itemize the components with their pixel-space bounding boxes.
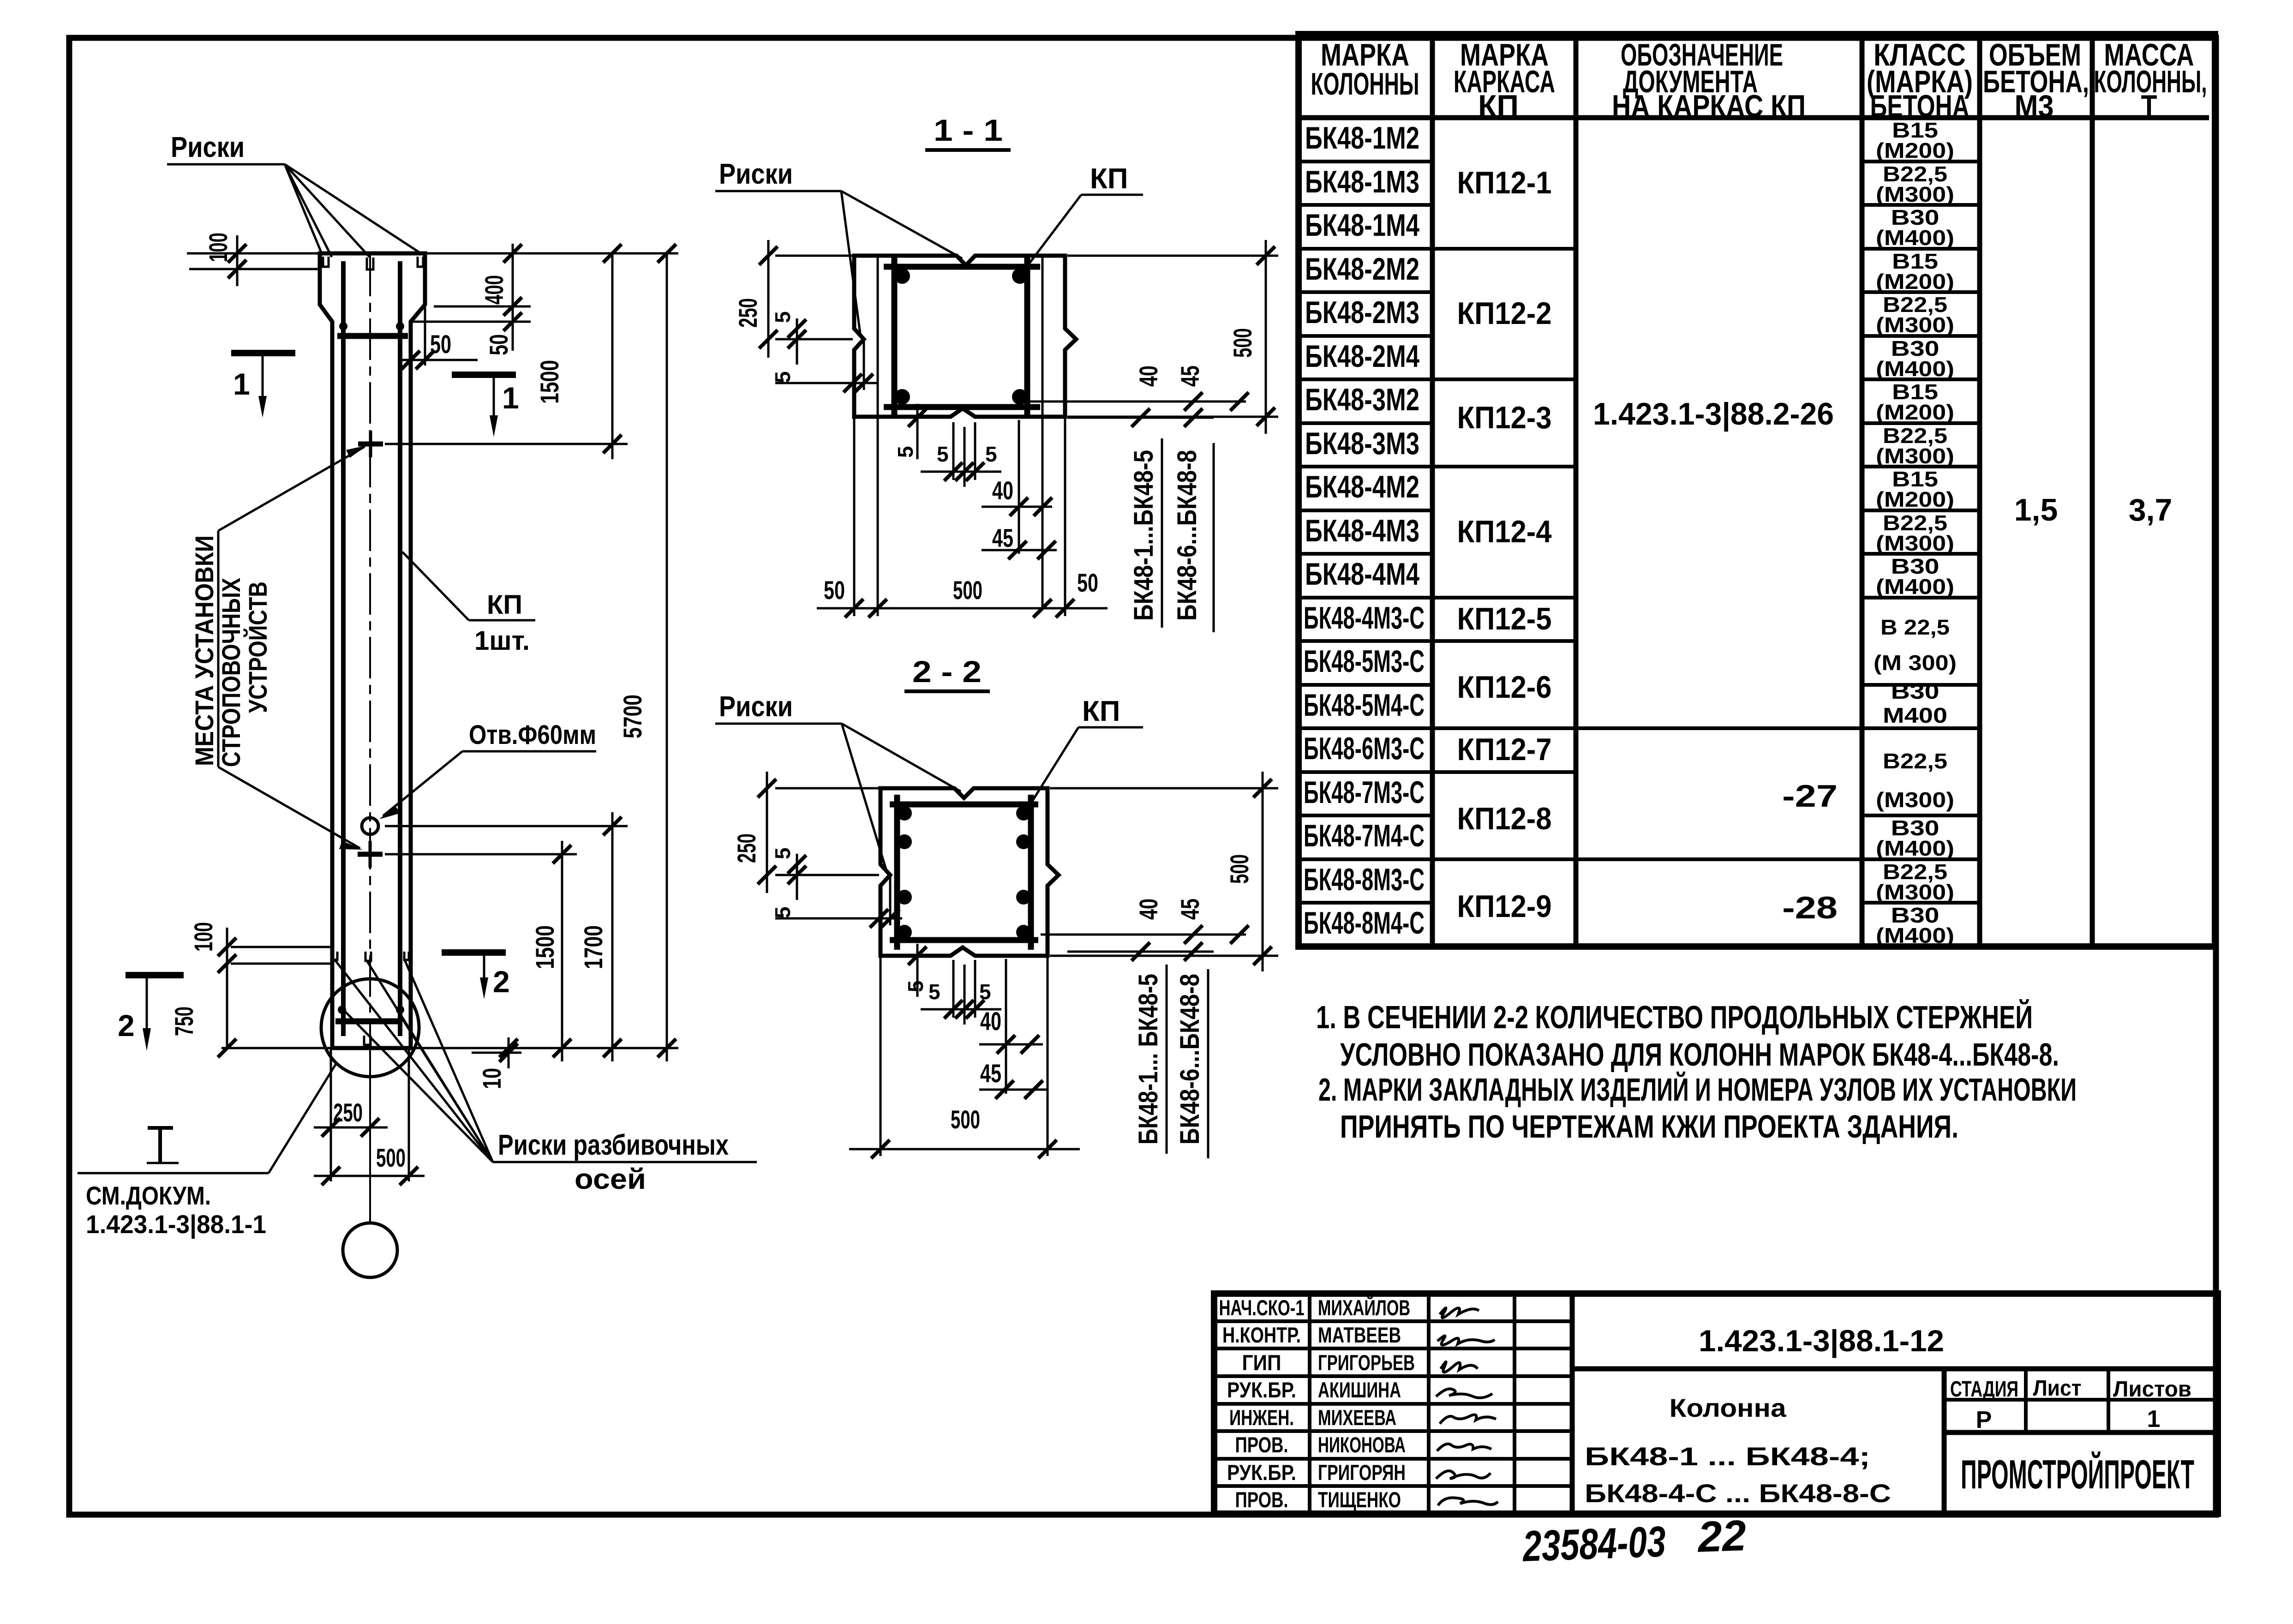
svg-text:5: 5 [771, 847, 795, 859]
svg-text:50: 50 [484, 334, 513, 355]
svg-text:(М400): (М400) [1876, 357, 1954, 381]
svg-text:БК48-6...БК48-8: БК48-6...БК48-8 [1175, 974, 1205, 1145]
svg-text:40: 40 [980, 1007, 1001, 1036]
svg-text:250: 250 [333, 1098, 363, 1127]
svg-text:НИКОНОВА: НИКОНОВА [1318, 1432, 1406, 1457]
svg-text:(М200): (М200) [1876, 487, 1954, 511]
svg-text:-28: -28 [1782, 890, 1838, 925]
svg-text:1 - 1: 1 - 1 [934, 113, 1003, 147]
svg-text:БК48-5М3-С: БК48-5М3-С [1304, 644, 1425, 679]
svg-text:5: 5 [937, 442, 949, 466]
svg-text:1500: 1500 [535, 360, 564, 404]
svg-text:КП12-3: КП12-3 [1457, 400, 1552, 435]
svg-text:БК48-8М3-С: БК48-8М3-С [1304, 862, 1425, 897]
svg-text:БК48-6М3-С: БК48-6М3-С [1304, 731, 1425, 766]
svg-text:1700: 1700 [579, 925, 608, 969]
svg-text:КП12-1: КП12-1 [1457, 165, 1552, 200]
svg-text:БК48-4М2: БК48-4М2 [1305, 469, 1419, 504]
svg-text:МИХЕЕВА: МИХЕЕВА [1318, 1405, 1396, 1430]
svg-text:РУК.БР.: РУК.БР. [1227, 1460, 1296, 1485]
svg-text:БК48-1М3: БК48-1М3 [1305, 164, 1419, 199]
svg-text:ИНЖЕН.: ИНЖЕН. [1229, 1405, 1294, 1430]
svg-text:Лист: Лист [2033, 1376, 2082, 1401]
svg-text:УСТРОЙСТВ: УСТРОЙСТВ [243, 581, 272, 713]
svg-text:В 22,5: В 22,5 [1880, 615, 1950, 639]
svg-text:АКИШИНА: АКИШИНА [1318, 1378, 1401, 1402]
svg-text:В30: В30 [1891, 679, 1940, 703]
svg-text:1.423.1-3|88.1-12: 1.423.1-3|88.1-12 [1699, 1324, 1944, 1359]
svg-text:40: 40 [992, 476, 1013, 505]
svg-text:ТИЩЕНКО: ТИЩЕНКО [1318, 1487, 1401, 1512]
svg-text:БК48-7М3-С: БК48-7М3-С [1304, 775, 1425, 810]
svg-text:500: 500 [951, 1105, 980, 1134]
svg-text:(М300): (М300) [1876, 444, 1954, 468]
svg-text:Риски: Риски [171, 132, 245, 163]
svg-text:ПРИНЯТЬ ПО ЧЕРТЕЖАМ КЖИ ПРОЕКТ: ПРИНЯТЬ ПО ЧЕРТЕЖАМ КЖИ ПРОЕКТА ЗДАНИЯ. [1340, 1109, 1958, 1145]
svg-text:(М300): (М300) [1876, 880, 1954, 904]
svg-text:КП12-7: КП12-7 [1457, 732, 1552, 767]
svg-text:400: 400 [479, 275, 509, 305]
svg-text:СМ.ДОКУМ.: СМ.ДОКУМ. [86, 1181, 211, 1210]
svg-text:1.423.1-3|88.2-26: 1.423.1-3|88.2-26 [1593, 396, 1834, 432]
svg-text:5: 5 [979, 980, 991, 1004]
svg-text:БК48-1М2: БК48-1М2 [1305, 120, 1419, 156]
svg-text:(М400): (М400) [1876, 226, 1954, 250]
svg-text:(М 300): (М 300) [1874, 651, 1957, 675]
svg-text:КП12-8: КП12-8 [1457, 801, 1552, 836]
svg-text:5: 5 [771, 311, 795, 323]
svg-text:(М200): (М200) [1876, 138, 1954, 162]
svg-text:ПРОВ.: ПРОВ. [1235, 1432, 1288, 1457]
svg-text:2 - 2: 2 - 2 [912, 654, 982, 689]
svg-text:БК48-4-С ... БК48-8-С: БК48-4-С ... БК48-8-С [1585, 1479, 1891, 1508]
svg-text:НАЧ.СКО-1: НАЧ.СКО-1 [1219, 1295, 1305, 1320]
svg-text:1,5: 1,5 [2014, 492, 2058, 527]
svg-text:В22,5: В22,5 [1883, 749, 1947, 773]
svg-text:Н.КОНТР.: Н.КОНТР. [1222, 1323, 1301, 1347]
svg-text:1шт.: 1шт. [474, 626, 530, 656]
svg-text:БК48-6...БК48-8: БК48-6...БК48-8 [1172, 450, 1202, 621]
svg-text:1.423.1-3|88.1-1: 1.423.1-3|88.1-1 [86, 1210, 266, 1239]
svg-text:-27: -27 [1782, 779, 1838, 814]
svg-text:(М300): (М300) [1876, 531, 1954, 555]
svg-text:1. В СЕЧЕНИИ 2-2 КОЛИЧЕСТВО ПР: 1. В СЕЧЕНИИ 2-2 КОЛИЧЕСТВО ПРОДОЛЬНЫХ С… [1316, 999, 2033, 1035]
svg-text:100: 100 [204, 233, 233, 262]
svg-text:22: 22 [1696, 1511, 1747, 1561]
svg-text:КП12-6: КП12-6 [1457, 670, 1552, 705]
svg-text:500: 500 [1225, 854, 1254, 884]
svg-text:5: 5 [904, 980, 928, 992]
svg-text:5: 5 [771, 906, 795, 918]
svg-text:(М300): (М300) [1876, 313, 1954, 337]
svg-text:осей: осей [575, 1163, 646, 1195]
svg-text:45: 45 [1175, 366, 1204, 387]
svg-text:БК48-4М4: БК48-4М4 [1305, 557, 1419, 592]
svg-text:БК48-1М4: БК48-1М4 [1305, 208, 1419, 243]
svg-text:БК48-7М4-С: БК48-7М4-С [1304, 818, 1425, 853]
svg-text:Риски: Риски [719, 158, 793, 190]
svg-text:45: 45 [992, 523, 1013, 552]
svg-text:750: 750 [169, 1007, 198, 1036]
svg-text:(М200): (М200) [1876, 270, 1954, 294]
svg-text:ПРОМСТРОЙПРОЕКТ: ПРОМСТРОЙПРОЕКТ [1961, 1451, 2194, 1497]
svg-text:50: 50 [824, 575, 845, 605]
svg-text:СТАДИЯ: СТАДИЯ [1950, 1377, 2018, 1402]
svg-text:КП12-2: КП12-2 [1457, 296, 1552, 331]
svg-text:ПРОВ.: ПРОВ. [1235, 1487, 1288, 1512]
svg-text:БК48-1...БК48-5: БК48-1...БК48-5 [1129, 450, 1159, 621]
svg-text:КП: КП [487, 590, 522, 620]
svg-text:СТРОПОВОЧНЫХ: СТРОПОВОЧНЫХ [216, 578, 245, 767]
svg-text:МАТВЕЕВ: МАТВЕЕВ [1318, 1323, 1401, 1347]
svg-text:БК48-5М4-С: БК48-5М4-С [1304, 688, 1425, 723]
svg-text:КП12-4: КП12-4 [1457, 514, 1552, 549]
svg-text:М400: М400 [1883, 703, 1947, 727]
svg-text:5: 5 [928, 980, 940, 1004]
svg-text:БК48-8М4-С: БК48-8М4-С [1304, 905, 1425, 941]
svg-text:500: 500 [1228, 328, 1257, 358]
svg-text:БК48-4М3: БК48-4М3 [1305, 513, 1419, 548]
svg-text:(М200): (М200) [1876, 400, 1954, 424]
svg-text:БК48-1... БК48-5: БК48-1... БК48-5 [1133, 974, 1163, 1145]
svg-text:2: 2 [118, 1008, 135, 1043]
svg-text:БК48-3М2: БК48-3М2 [1305, 382, 1419, 417]
svg-text:45: 45 [1175, 899, 1204, 920]
svg-text:(М300): (М300) [1876, 788, 1954, 812]
svg-text:40: 40 [1134, 899, 1163, 920]
svg-text:2. МАРКИ ЗАКЛАДНЫХ ИЗДЕЛИЙ И Н: 2. МАРКИ ЗАКЛАДНЫХ ИЗДЕЛИЙ И НОМЕРА УЗЛО… [1318, 1071, 2077, 1108]
svg-text:МЕСТА УСТАНОВКИ: МЕСТА УСТАНОВКИ [190, 535, 219, 766]
svg-text:Листов: Листов [2113, 1377, 2191, 1402]
svg-text:1: 1 [2147, 1406, 2161, 1432]
svg-text:РУК.БР.: РУК.БР. [1227, 1378, 1296, 1402]
svg-text:1500: 1500 [530, 925, 559, 969]
svg-text:2: 2 [493, 965, 510, 999]
svg-text:50: 50 [430, 330, 451, 359]
svg-text:МИХАЙЛОВ: МИХАЙЛОВ [1318, 1295, 1410, 1320]
svg-text:КП: КП [1478, 89, 1519, 124]
svg-text:100: 100 [189, 922, 218, 952]
svg-text:10: 10 [477, 1068, 506, 1089]
svg-text:Р: Р [1976, 1407, 1992, 1433]
svg-text:40: 40 [1134, 366, 1163, 387]
svg-text:БК48-2М3: БК48-2М3 [1305, 295, 1419, 330]
svg-text:Отв.Ф60мм: Отв.Ф60мм [469, 720, 596, 750]
svg-text:НА КАРКАС КП: НА КАРКАС КП [1612, 89, 1806, 124]
svg-text:ГРИГОРЬЕВ: ГРИГОРЬЕВ [1318, 1350, 1415, 1375]
svg-text:Риски: Риски [719, 691, 793, 723]
svg-text:(М400): (М400) [1876, 836, 1954, 860]
svg-text:5: 5 [893, 446, 917, 458]
svg-text:23584-03: 23584-03 [1521, 1517, 1666, 1570]
svg-text:КП: КП [1082, 695, 1120, 727]
svg-text:Риски разбивочных: Риски разбивочных [498, 1129, 729, 1161]
svg-text:Колонна: Колонна [1670, 1393, 1787, 1422]
svg-text:ГРИГОРЯН: ГРИГОРЯН [1318, 1460, 1406, 1485]
svg-text:БК48-1 ... БК48-4;: БК48-1 ... БК48-4; [1585, 1442, 1870, 1471]
svg-text:250: 250 [732, 833, 761, 863]
svg-text:КП: КП [1090, 163, 1128, 195]
svg-text:1: 1 [502, 381, 519, 415]
svg-text:Т: Т [2141, 89, 2157, 124]
svg-text:250: 250 [733, 298, 762, 328]
svg-text:5: 5 [771, 371, 795, 383]
svg-text:(М400): (М400) [1876, 923, 1954, 947]
svg-text:5: 5 [985, 442, 997, 466]
svg-text:3,7: 3,7 [2129, 492, 2173, 527]
svg-text:БК48-4М3-С: БК48-4М3-С [1304, 600, 1425, 635]
svg-text:УСЛОВНО ПОКАЗАНО ДЛЯ КОЛОНН МА: УСЛОВНО ПОКАЗАНО ДЛЯ КОЛОНН МАРОК БК48-4… [1340, 1037, 2059, 1073]
svg-text:5700: 5700 [618, 695, 647, 738]
svg-text:(М300): (М300) [1876, 182, 1954, 206]
svg-text:500: 500 [376, 1143, 406, 1172]
svg-text:М3: М3 [2015, 89, 2054, 124]
svg-text:КП12-5: КП12-5 [1457, 601, 1552, 636]
svg-text:КП12-9: КП12-9 [1457, 889, 1552, 924]
svg-text:ГИП: ГИП [1242, 1350, 1281, 1375]
svg-text:45: 45 [980, 1059, 1001, 1088]
svg-text:500: 500 [953, 575, 982, 605]
svg-text:(М400): (М400) [1876, 575, 1954, 599]
svg-text:БК48-2М2: БК48-2М2 [1305, 252, 1419, 287]
svg-text:БК48-2М4: БК48-2М4 [1305, 339, 1419, 374]
svg-text:1: 1 [233, 367, 250, 401]
svg-text:50: 50 [1077, 568, 1098, 597]
svg-text:КОЛОННЫ: КОЛОННЫ [1311, 66, 1419, 102]
svg-text:БК48-3М3: БК48-3М3 [1305, 426, 1419, 461]
